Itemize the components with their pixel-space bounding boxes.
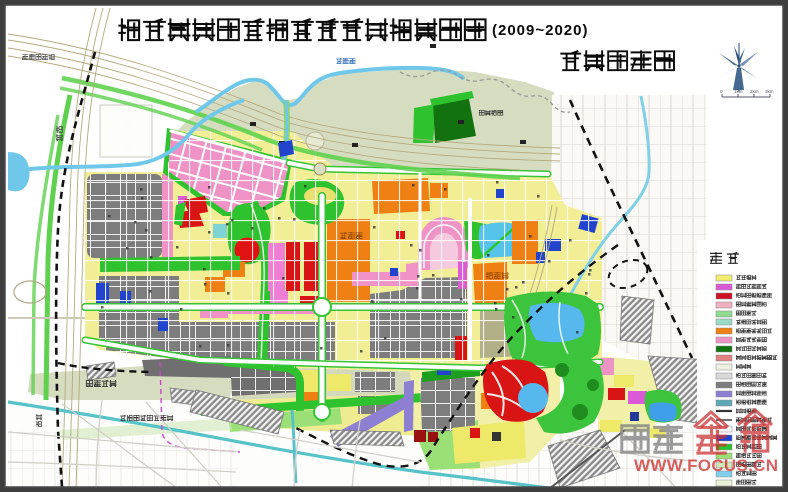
svg-text:3km: 3km bbox=[765, 89, 774, 94]
svg-text:(2009~2020): (2009~2020) bbox=[492, 22, 589, 39]
svg-text:1km: 1km bbox=[734, 89, 743, 94]
svg-text:2km: 2km bbox=[750, 89, 759, 94]
svg-text:WWW.FOCUS.CN: WWW.FOCUS.CN bbox=[634, 456, 778, 475]
